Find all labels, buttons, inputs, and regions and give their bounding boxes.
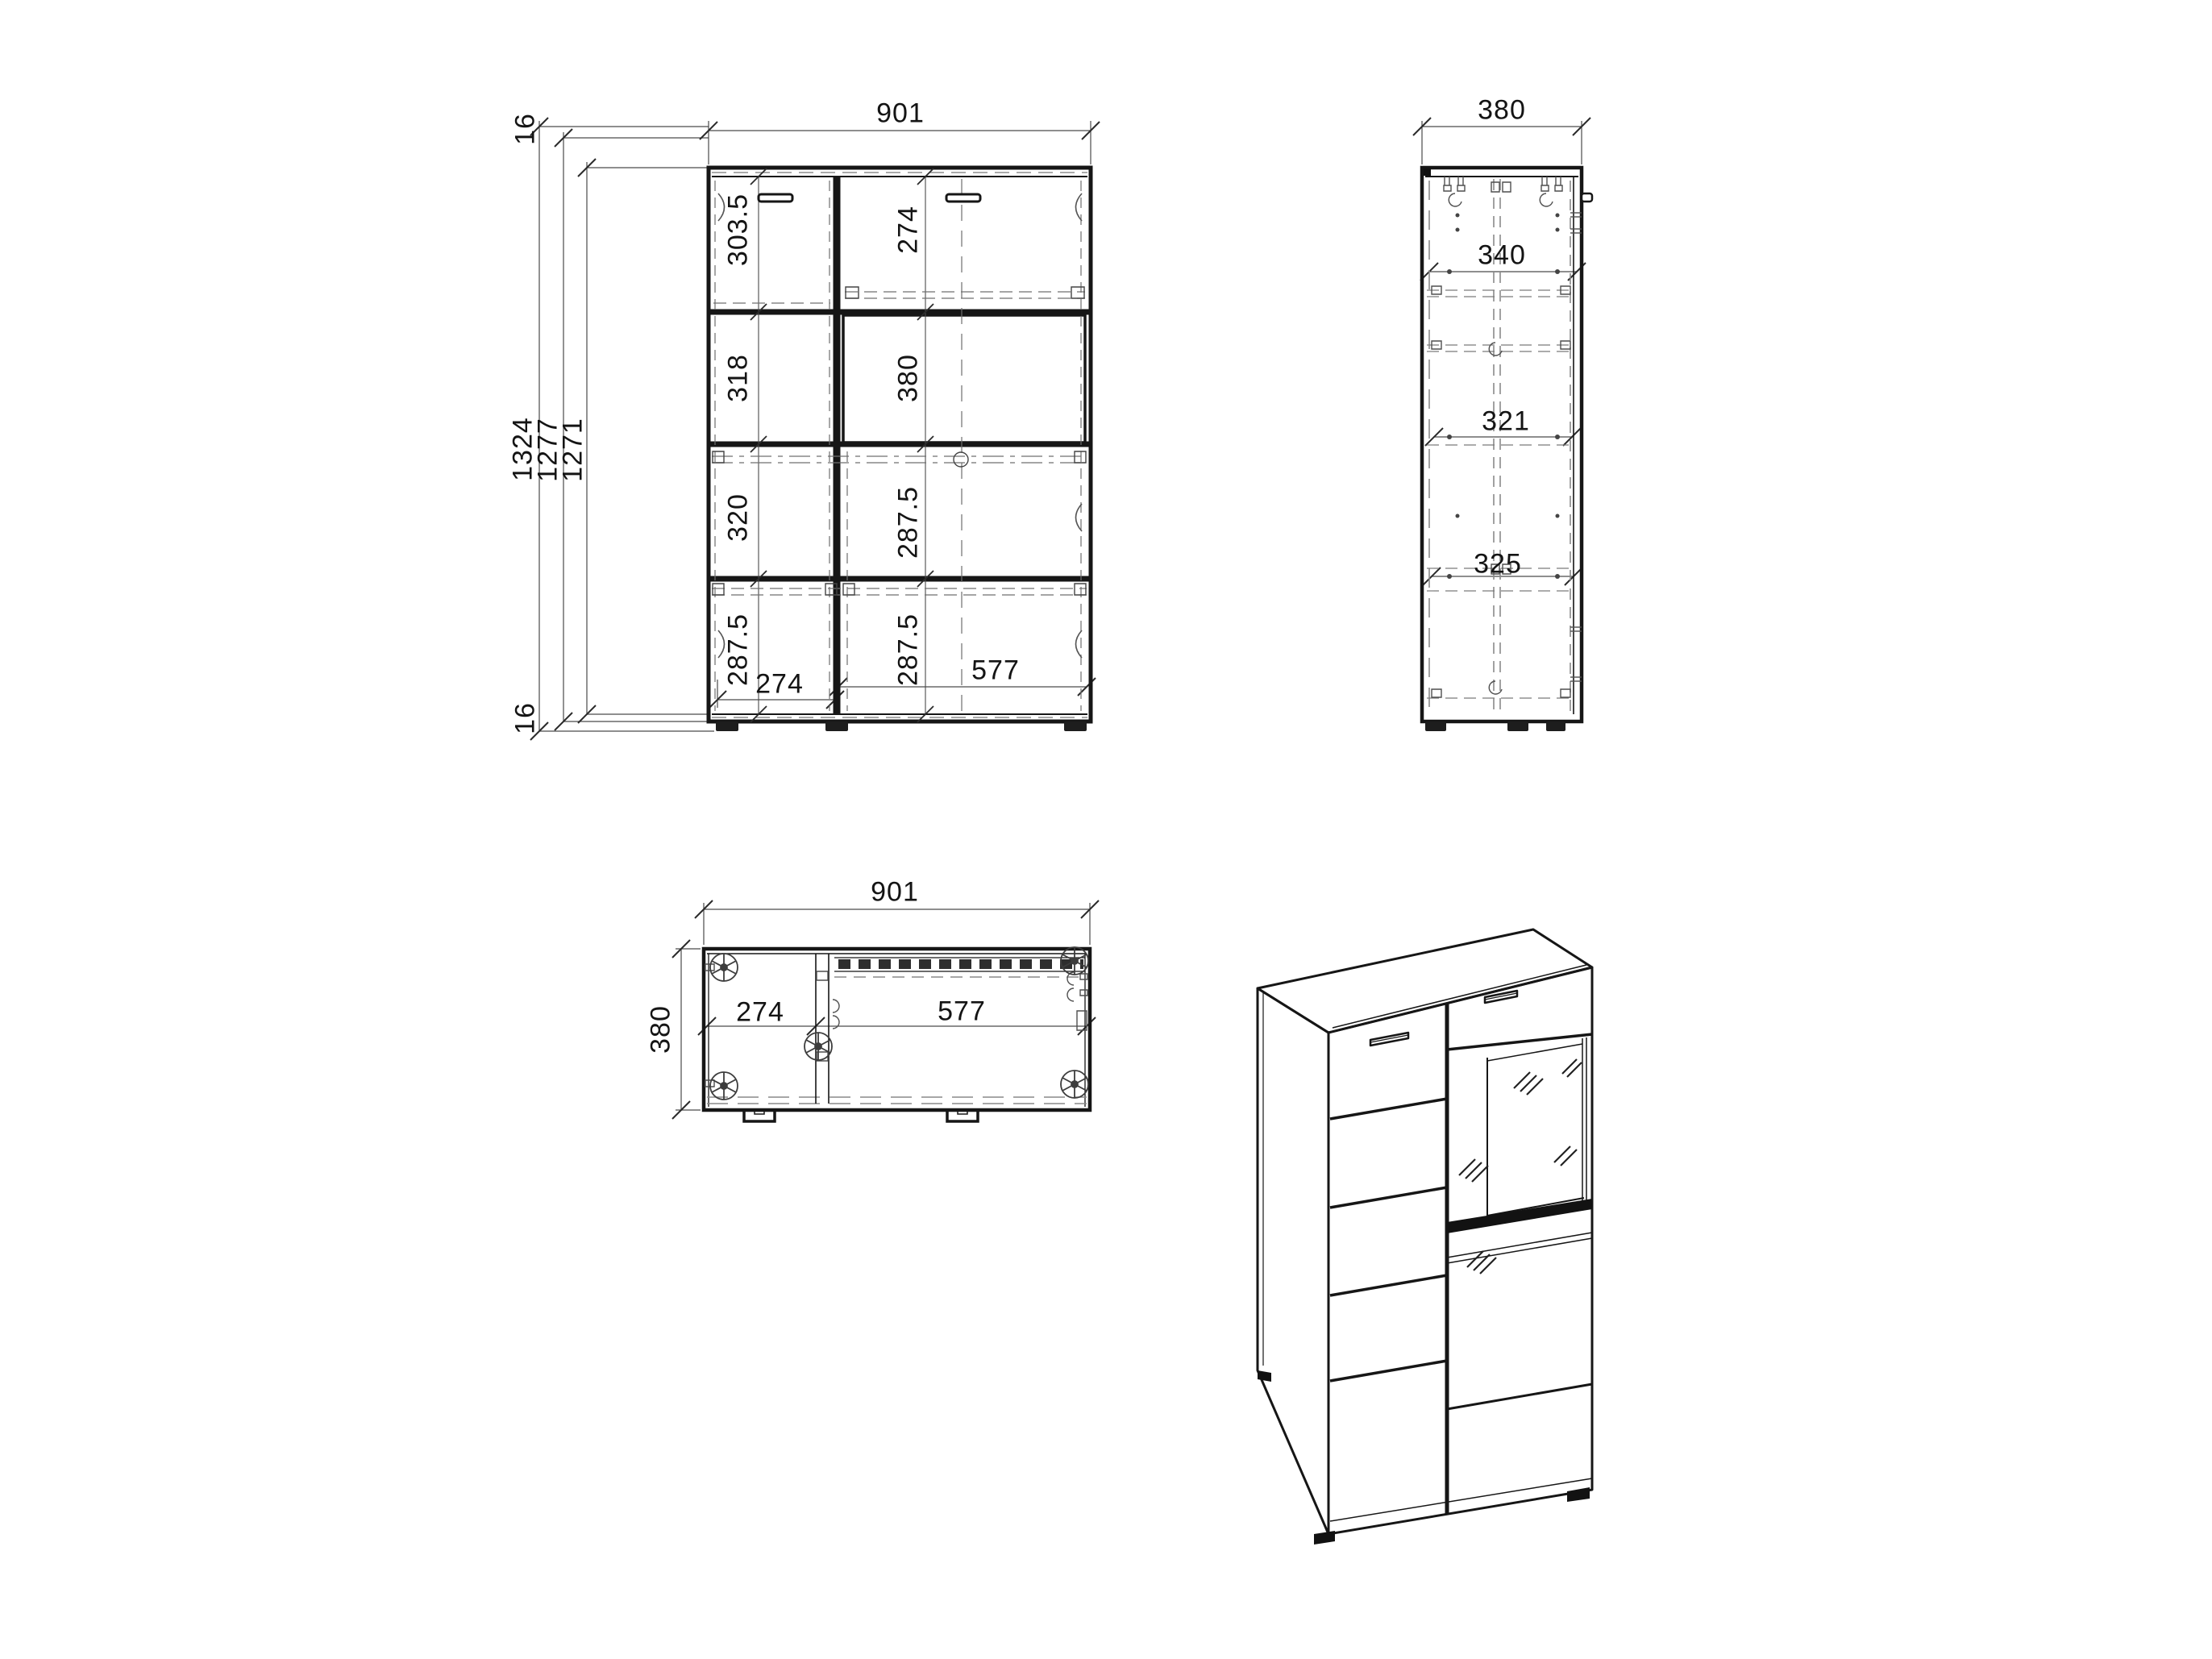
glass-hatch xyxy=(1459,1059,1582,1274)
front-width-dim: 901 xyxy=(876,98,925,130)
side-dim-321: 321 xyxy=(1482,406,1530,438)
front-cell-287-5-l: 287.5 xyxy=(723,613,755,686)
top-width-dim: 901 xyxy=(871,877,919,908)
front-cell-303-5: 303.5 xyxy=(723,193,755,266)
side-depth-dim: 380 xyxy=(1478,95,1526,127)
front-view xyxy=(530,118,1100,740)
top-depth-dim: 380 xyxy=(646,1005,677,1054)
front-cell-274: 274 xyxy=(893,206,925,254)
foot-wheel xyxy=(1061,1071,1088,1098)
front-cell-287-5-r4: 287.5 xyxy=(893,613,925,686)
front-cell-320: 320 xyxy=(723,493,755,542)
side-dim-325: 325 xyxy=(1474,549,1522,580)
technical-drawing-canvas xyxy=(0,0,2212,1659)
front-cell-318: 318 xyxy=(723,354,755,402)
cad-drawing-page: { "front_view": { "width_dim": "901", "b… xyxy=(0,0,2212,1659)
side-dim-340: 340 xyxy=(1478,240,1526,272)
foot-wheel xyxy=(805,1033,832,1060)
front-bottom-width-274: 274 xyxy=(755,669,804,701)
front-height-dim-1271: 1271 xyxy=(558,418,589,482)
iso-view xyxy=(1258,929,1592,1545)
front-bottom-board-dim: 16 xyxy=(510,702,542,734)
front-cell-380: 380 xyxy=(893,354,925,402)
top-left-width-dim: 274 xyxy=(736,997,784,1029)
front-top-board-dim: 16 xyxy=(510,113,542,145)
front-bottom-width-577: 577 xyxy=(971,655,1020,687)
front-cell-287-5-r3: 287.5 xyxy=(893,486,925,559)
top-right-width-dim: 577 xyxy=(938,996,986,1028)
